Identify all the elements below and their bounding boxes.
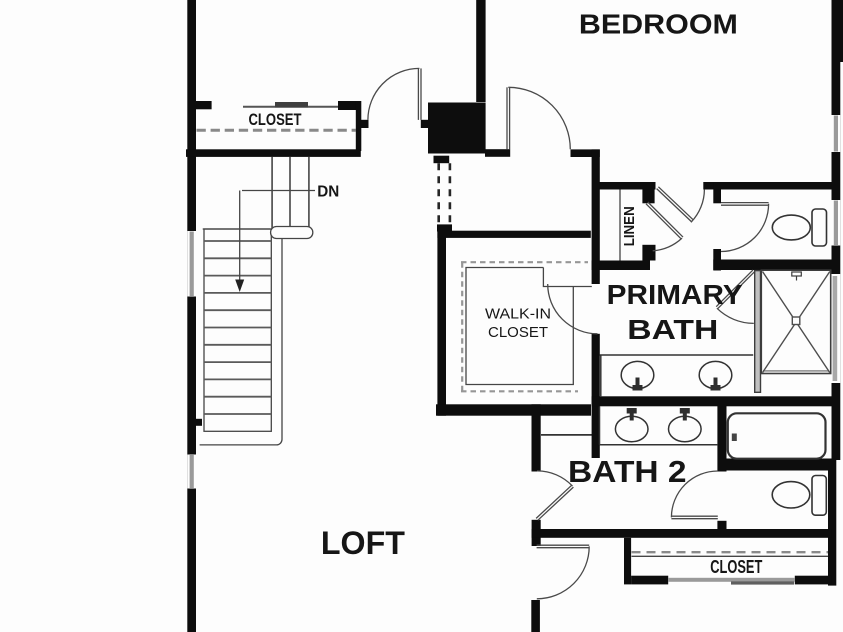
svg-text:LOFT: LOFT — [321, 525, 405, 561]
svg-text:CLOSET: CLOSET — [249, 110, 302, 129]
svg-text:CLOSET: CLOSET — [710, 557, 762, 577]
svg-text:DN: DN — [317, 184, 339, 201]
svg-text:BEDROOM: BEDROOM — [579, 8, 738, 39]
svg-text:BATH 2: BATH 2 — [568, 455, 687, 489]
svg-text:PRIMARY: PRIMARY — [607, 279, 743, 310]
svg-text:CLOSET: CLOSET — [488, 324, 548, 341]
svg-text:BATH: BATH — [627, 314, 718, 345]
svg-text:WALK-IN: WALK-IN — [485, 306, 551, 323]
svg-text:LINEN: LINEN — [621, 206, 638, 246]
